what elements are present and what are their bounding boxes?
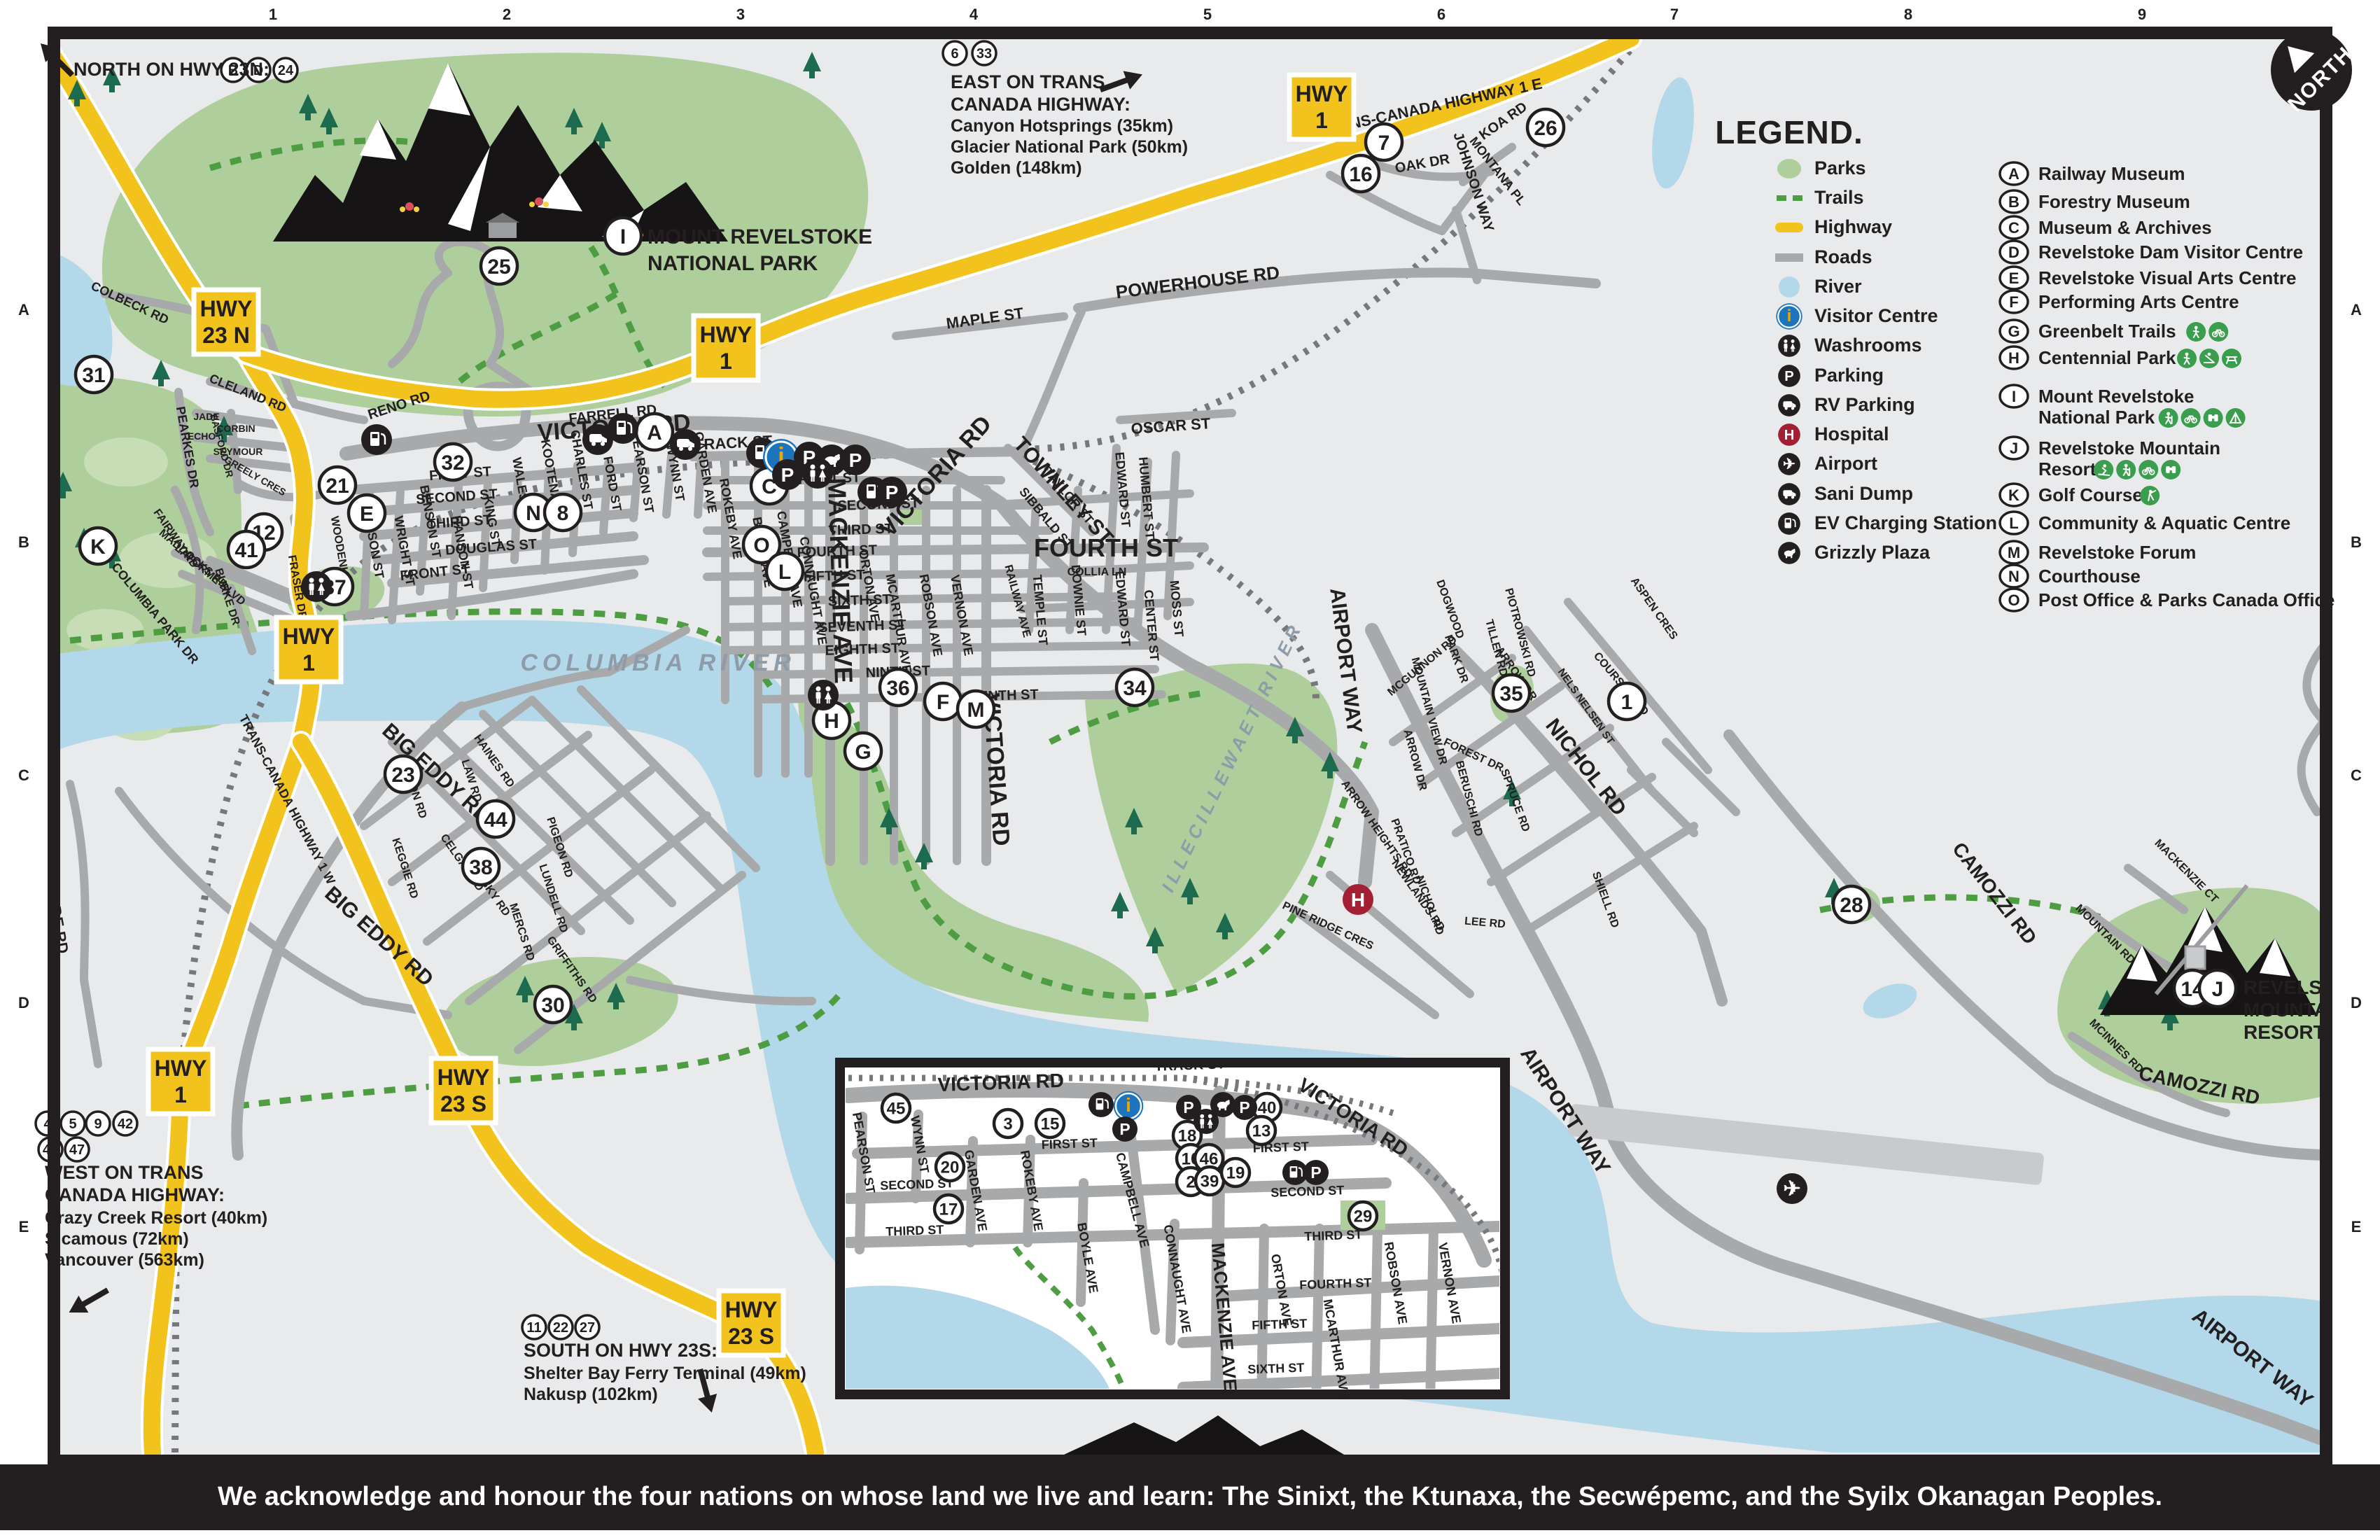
map-label: 5 [69,1116,76,1132]
note-title: SOUTH ON HWY 23S: [524,1340,717,1361]
map-label: 34 [1123,677,1147,700]
legend-place-label: Golf Course [2038,484,2143,505]
map-label: 27 [580,1320,595,1336]
map-label: 1 [174,1082,187,1107]
legend-symbol-label: Washrooms [1814,335,1922,356]
street-label: THIRD ST [885,1223,944,1239]
info-icon: i [1776,303,1802,329]
legend-symbol-airport: ✈Airport [1778,453,1877,475]
legend-symbol-label: EV Charging Station [1814,512,1997,533]
legend-place-label: Performing Arts Centre [2038,291,2239,312]
grid-col-label: 9 [2138,6,2146,23]
street-label: TRACK ST [1154,1056,1226,1074]
map-label: 20 [941,1158,960,1177]
map-label: M [2008,544,2020,561]
poi-marker-8: 8 [545,494,581,531]
street-label: RESORT [2243,1021,2325,1043]
map-label: K [2008,486,2019,504]
note-title: CANADA HIGHWAY: [45,1184,225,1205]
street-label: MOUNT REVELSTOKE [647,225,872,248]
legend-place-label: Post Office & Parks Canada Office [2038,589,2334,610]
map-label: HWY [437,1065,490,1090]
rv-icon [582,424,613,455]
map-label: P [849,449,862,471]
street-label: FIFTH ST [1252,1317,1308,1333]
map-label: J [2212,978,2224,1001]
grid-row-label: E [19,1218,29,1235]
street-label: EIGHTH ST [825,640,899,659]
note-line: Glacier National Park (50km) [951,137,1188,157]
map-label: 23 [391,764,414,787]
poi-marker-7: 7 [1366,124,1402,160]
map-label: L [778,561,791,584]
grid-col-label: 3 [736,6,745,23]
map-label: L [2009,514,2018,532]
sani-icon [1778,483,1800,505]
ev-icon [1778,512,1800,535]
map-label: 40 [1258,1099,1277,1118]
map-label: O [2008,591,2019,609]
legend-place-label: Forestry Museum [2038,191,2190,212]
map-label: 13 [1252,1122,1271,1141]
map-label: HWY [700,322,752,347]
map-label: A [2008,165,2019,183]
activity-paddle-icon [2199,349,2219,368]
map-label: 41 [234,539,258,562]
hwy-badge-1: HWY1 [694,316,758,380]
street-label: FOURTH ST [797,542,877,561]
map-label: F [937,691,949,714]
map-label: J [2010,440,2018,457]
map-label: 42 [118,1116,133,1132]
map-label: 35 [1499,682,1522,706]
map-label: 30 [541,994,564,1017]
acknowledgement-bar: We acknowledge and honour the four natio… [0,1464,2380,1530]
airport-icon: ✈ [1777,1173,1807,1204]
info-icon: i [1114,1091,1144,1121]
poi-marker-45: 45 [882,1094,910,1122]
map-label: 31 [82,364,105,387]
legend-place-label: Revelstoke Forum [2038,542,2196,563]
poi-marker-G: G [845,733,881,769]
map-label: H [1351,889,1365,911]
legend-place-label: Revelstoke Dam Visitor Centre [2038,241,2303,262]
poi-marker-1: 1 [1609,683,1645,720]
activity-bike-icon [2138,460,2158,479]
map-label: H [2008,349,2019,367]
legend-place-label: Courthouse [2038,566,2141,587]
note-title: WEST ON TRANS [45,1162,204,1183]
note-line: Sicamous (72km) [45,1229,189,1249]
legend-symbol-swatch-river: River [1779,276,1862,297]
map-label: P [1119,1120,1130,1138]
note-line: Vancouver (563km) [45,1250,204,1270]
parking-icon: P [840,444,871,475]
map-label: 8 [557,502,569,525]
legend-place-N: NCourthouse [2000,565,2141,587]
map-label: HWY [155,1056,207,1081]
legend-symbol-label: Airport [1814,453,1877,474]
activity-bike-icon [2181,408,2201,428]
map-label: E [360,503,374,526]
parking-icon: P [1778,365,1800,387]
map-label: 23 S [440,1091,486,1116]
map-label: G [855,741,871,764]
legend-symbol-label: Parking [1814,365,1884,386]
hwy-badge-1: HWY1 [148,1049,213,1114]
legend-symbol-label: Visitor Centre [1814,305,1938,326]
poi-marker-A: A [636,414,673,450]
map-label: 11 [526,1320,541,1336]
grid-col-label: 1 [269,6,277,23]
map-label: 19 [1226,1164,1245,1183]
revelstoke-tourist-map: { "page": { "acknowledgement": "We ackno… [0,0,2380,1540]
grizzly-icon [1778,542,1800,564]
poi-marker-E: E [349,495,385,531]
map-label: H [824,710,839,733]
map-label: I [2012,388,2016,405]
note-title: EAST ON TRANS [951,71,1105,92]
grid-col-label: 8 [1904,6,1912,23]
map-label: K [90,535,106,559]
map-label: 25 [487,255,510,279]
legend-place-label2: Resort [2038,458,2096,479]
acknowledgement-text: We acknowledge and honour the four natio… [218,1482,2162,1511]
map-label: N [526,502,541,525]
grizzly-icon [1210,1092,1235,1117]
map-label: 36 [886,677,909,700]
poi-marker-31: 31 [76,356,112,393]
map-label: 2 [1186,1173,1195,1192]
legend-symbol-label: Trails [1814,187,1864,208]
street-label: THIRD ST [828,521,893,538]
legend-place-label2: National Park [2038,407,2155,428]
map-label: 32 [441,451,464,475]
legend-place-label: Mount Revelstoke [2038,386,2194,407]
legend-place-label: Community & Aquatic Centre [2038,512,2290,533]
map-label: 23 S [728,1324,774,1349]
legend-place-label: Revelstoke Visual Arts Centre [2038,267,2297,288]
map-label: O [753,534,769,557]
legend-place-E: ERevelstoke Visual Arts Centre [2000,267,2297,289]
legend-symbol-label: River [1814,276,1862,297]
activity-walk-icon [2186,322,2206,342]
map-label: ✈ [1783,455,1795,472]
grid-row-label: C [18,766,29,784]
parking-icon: P [1232,1095,1257,1120]
hwy-badge-23S: HWY23 S [719,1291,783,1355]
street-label: VICTORIA RD [937,1070,1064,1095]
map-label: P [1310,1163,1321,1182]
map-label: 1 [1621,691,1633,714]
grid-row-label: E [2351,1218,2362,1235]
poi-marker-I: I [605,218,641,254]
legend-symbol-label: Highway [1814,216,1892,237]
note-line: Shelter Bay Ferry Terminal (49km) [524,1364,806,1383]
street-label: THIRD ST [1304,1228,1363,1244]
activity-hike-icon [2116,460,2136,479]
map-label: M [967,699,985,722]
poi-marker-44: 44 [477,801,514,837]
parking-icon: P [1112,1116,1137,1142]
poi-marker-26: 26 [1527,109,1564,146]
legend-place-label: Centennial Park [2038,347,2176,368]
note-line: Nakusp (102km) [524,1385,658,1404]
legend-symbol-label: RV Parking [1814,394,1915,415]
grid-col-label: 7 [1670,6,1679,23]
map-label: P [885,482,899,503]
map-label: N [2008,568,2019,585]
street-label: FIFTH ST [804,567,865,584]
legend-place-K: KGolf Course [2000,484,2159,506]
street-label: SIXTH ST [1247,1361,1305,1377]
poi-marker-F: F [925,683,961,720]
washroom-icon [1778,335,1800,357]
map-label: HWY [1296,81,1348,106]
poi-marker-17: 17 [934,1195,962,1223]
poi-marker-13: 13 [1247,1116,1275,1144]
hwy-badge-23S: HWY23 S [431,1058,496,1123]
legend-symbol-parking: PParking [1778,365,1884,387]
map-label: 29 [1354,1207,1373,1226]
map-label: HWY [200,296,253,321]
poi-marker-M: M [958,691,994,727]
map-label: 39 [1200,1172,1219,1191]
rv-icon [1778,394,1800,416]
poi-marker-30: 30 [535,986,571,1023]
grid-row-label: A [2351,301,2362,318]
legend-place-label: Museum & Archives [2038,217,2212,238]
poi-marker-J: J [2199,970,2236,1007]
grid-col-label: 6 [1437,6,1445,23]
map-label: 1 [720,349,732,374]
washroom-icon [301,571,332,602]
hospital-icon: H [1778,423,1800,446]
map-label: ✈ [1783,1177,1800,1200]
map-label: 44 [484,808,507,832]
grid-row-label: D [18,994,29,1011]
map-label: 22 [553,1320,568,1336]
street-label: COLLIA LN [1067,566,1127,578]
ev-icon [361,424,392,455]
map-label: 33 [976,46,992,62]
map-label: 28 [1840,894,1863,917]
map-label: 45 [887,1100,906,1119]
legend-place-L: LCommunity & Aquatic Centre [2000,512,2290,534]
map-label: H [1784,428,1795,443]
map-label: 18 [1178,1127,1197,1146]
poi-marker-K: K [80,528,116,564]
legend-place-O: OPost Office & Parks Canada Office [2000,589,2334,611]
poi-marker-21: 21 [319,467,356,503]
map-label: 38 [469,856,492,879]
map-label: A [647,421,662,444]
airport-icon: ✈ [1778,453,1800,475]
note-line: Golden (148km) [951,158,1082,178]
map-label: i [1126,1094,1131,1116]
poi-marker-32: 32 [435,444,471,480]
legend-symbol-label: Sani Dump [1814,483,1913,504]
poi-marker-23: 23 [385,756,421,792]
map-label: D [2008,244,2019,261]
map-label: E [2009,269,2019,287]
activity-ski-icon [2094,460,2113,479]
poi-marker-15: 15 [1036,1109,1064,1137]
parking-icon: P [876,477,907,507]
street-label: NATIONAL PARK [647,252,818,275]
poi-marker-25: 25 [481,248,517,284]
legend-symbol-swatch-park: Parks [1777,157,1866,178]
activity-bike-icon [2208,322,2228,342]
poi-marker-38: 38 [463,848,499,885]
note-title: NORTH ON HWY 23N: [73,59,269,80]
grid-col-label: 5 [1203,6,1212,23]
ev-icon [1088,1092,1114,1117]
street-label: SEVENTH ST [818,617,906,636]
map-label: F [2009,293,2018,311]
map-label: P [781,464,794,486]
grid-col-label: 4 [969,6,979,23]
activity-picnic-icon [2222,349,2241,368]
map-label: 24 [278,63,294,78]
activity-binoc-icon [2161,460,2180,479]
map-label: 1 [302,650,315,675]
river-label: COLUMBIA RIVER [520,650,795,676]
poi-marker-L: L [766,553,803,589]
map-label: i [1787,307,1792,325]
poi-marker-16: 16 [1343,155,1379,192]
legend-symbol-label: Roads [1814,246,1872,267]
hwy-badge-1: HWY1 [276,617,341,682]
map-label: 1 [1315,108,1328,133]
grid-row-label: B [18,533,29,551]
poi-marker-20: 20 [936,1153,964,1181]
legend-place-label: Greenbelt Trails [2038,321,2176,342]
map-label: I [620,225,626,248]
map-label: HWY [725,1297,778,1322]
legend-title: LEGEND. [1715,114,1863,150]
legend-symbol-label: Grizzly Plaza [1814,542,1931,563]
legend-symbol-label: Parks [1814,157,1866,178]
map-label: 16 [1349,163,1372,186]
legend-place-D: DRevelstoke Dam Visitor Centre [2000,241,2303,263]
activity-tent-icon [2226,408,2246,428]
poi-marker-39: 39 [1196,1167,1224,1195]
map-label: C [2008,219,2019,237]
sani-icon [670,429,701,460]
parking-icon: P [1303,1160,1329,1185]
map-label: 15 [1041,1115,1060,1134]
map-label: 17 [939,1200,958,1219]
grid-row-label: B [2351,533,2362,551]
map-label: 7 [1378,132,1390,155]
note-line: Crazy Creek Resort (40km) [45,1208,267,1228]
map-label: P [1183,1098,1193,1116]
map-label: B [2008,193,2019,211]
poi-marker-36: 36 [880,669,916,706]
map-canvas: VICTORIA RDVICTORIA RDVICTORIA RDFOURTH … [0,0,2380,1540]
poi-marker-34: 34 [1116,669,1153,706]
poi-marker-29: 29 [1349,1202,1377,1230]
map-label: P [1784,369,1793,384]
grid-row-label: D [2351,994,2362,1011]
grid-row-label: C [2351,766,2362,784]
grid-row-label: A [18,301,29,318]
poi-marker-35: 35 [1493,675,1529,711]
poi-marker-19: 19 [1221,1158,1249,1186]
map-label: 6 [951,46,958,62]
street-label: SECOND ST [1270,1183,1345,1200]
legend-place-label: Railway Museum [2038,163,2185,184]
grid-col-label: 2 [503,6,511,23]
map-label: 23 N [202,323,250,348]
map-label: 3 [1003,1115,1012,1134]
poi-marker-28: 28 [1833,886,1870,923]
legend-symbol-label: Hospital [1814,423,1889,444]
map-label: 47 [69,1142,85,1158]
map-label: G [2008,323,2019,340]
hwy-badge-1: HWY1 [1289,75,1354,139]
activity-walk-icon [2177,349,2197,368]
washroom-icon [802,458,833,489]
street-label: FOURTH ST [1299,1275,1372,1292]
activity-golf-icon [2140,486,2159,505]
street-label: ECHO [188,430,216,442]
note-title: CANADA HIGHWAY: [951,94,1130,115]
map-label: 21 [325,475,349,498]
map-label: 26 [1534,117,1557,140]
activity-hike-icon [2159,408,2178,428]
legend-place-label: Revelstoke Mountain [2038,437,2220,458]
map-label: 9 [94,1116,101,1132]
street-label: SIXTH ST [827,591,891,609]
map-label: HWY [283,624,335,649]
poi-marker-3: 3 [994,1109,1022,1137]
map-label: P [1239,1098,1249,1116]
hospital-icon: H [1343,884,1373,915]
note-line: Canyon Hotsprings (35km) [951,116,1173,136]
activity-binoc-icon [2204,408,2223,428]
legend-symbol-hospital: HHospital [1778,423,1889,446]
hwy-badge-23N: HWY23 N [194,290,258,354]
washroom-icon [808,680,839,710]
poi-marker-41: 41 [228,531,265,568]
